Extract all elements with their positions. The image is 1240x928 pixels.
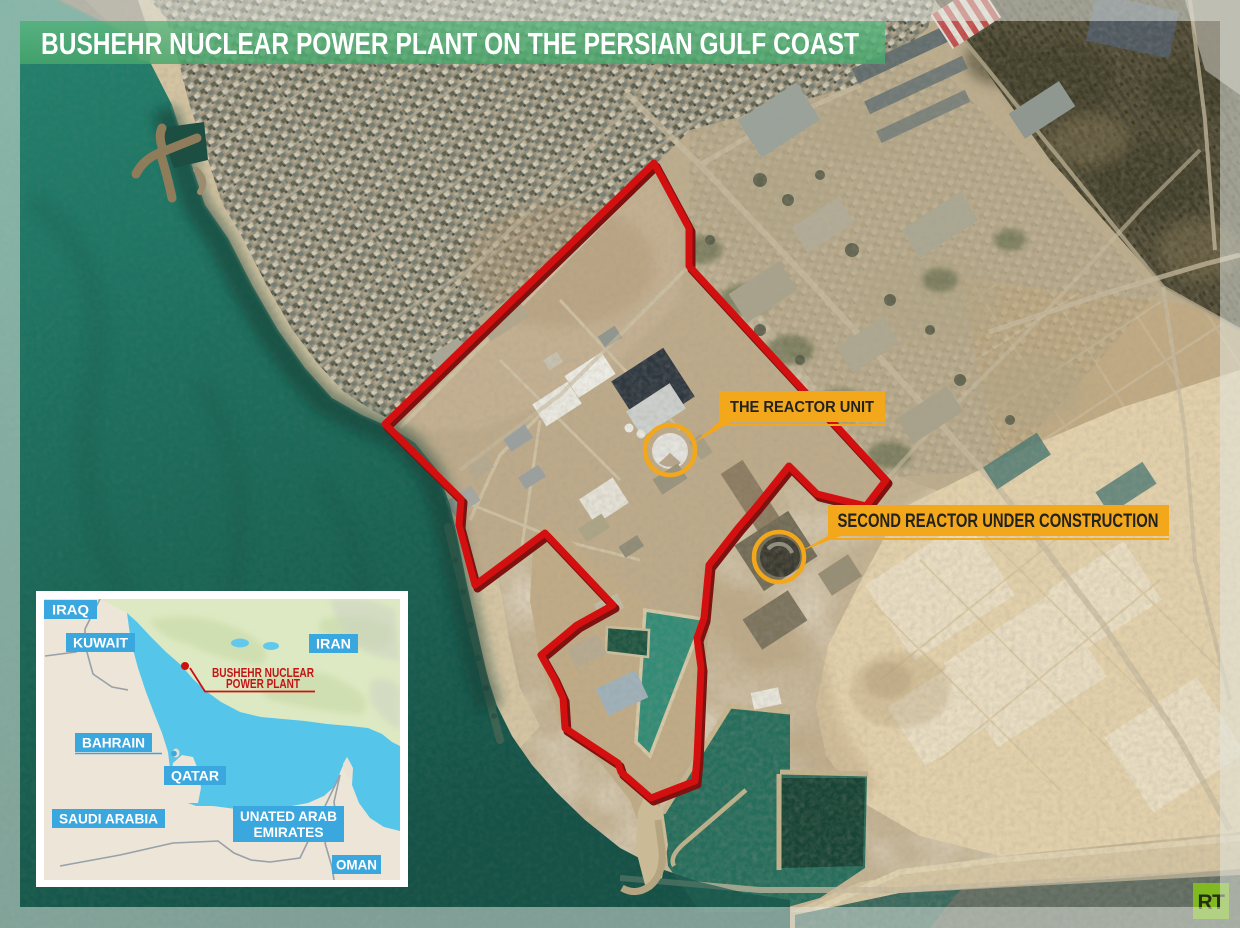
svg-text:BAHRAIN: BAHRAIN bbox=[82, 735, 145, 751]
svg-text:QATAR: QATAR bbox=[171, 768, 219, 784]
svg-text:UNATED ARAB: UNATED ARAB bbox=[240, 808, 337, 824]
svg-text:THE REACTOR UNIT: THE REACTOR UNIT bbox=[730, 399, 874, 416]
svg-text:SAUDI ARABIA: SAUDI ARABIA bbox=[59, 811, 158, 827]
svg-text:BUSHEHR NUCLEAR POWER PLANT ON: BUSHEHR NUCLEAR POWER PLANT ON THE PERSI… bbox=[41, 26, 859, 61]
svg-text:KUWAIT: KUWAIT bbox=[73, 635, 128, 651]
svg-text:POWER PLANT: POWER PLANT bbox=[226, 677, 300, 691]
svg-text:IRAN: IRAN bbox=[316, 636, 351, 652]
svg-text:IRAQ: IRAQ bbox=[52, 602, 89, 618]
svg-text:EMIRATES: EMIRATES bbox=[254, 824, 324, 840]
svg-text:SECOND REACTOR UNDER CONSTRUCT: SECOND REACTOR UNDER CONSTRUCTION bbox=[838, 511, 1159, 532]
svg-text:OMAN: OMAN bbox=[336, 857, 377, 873]
